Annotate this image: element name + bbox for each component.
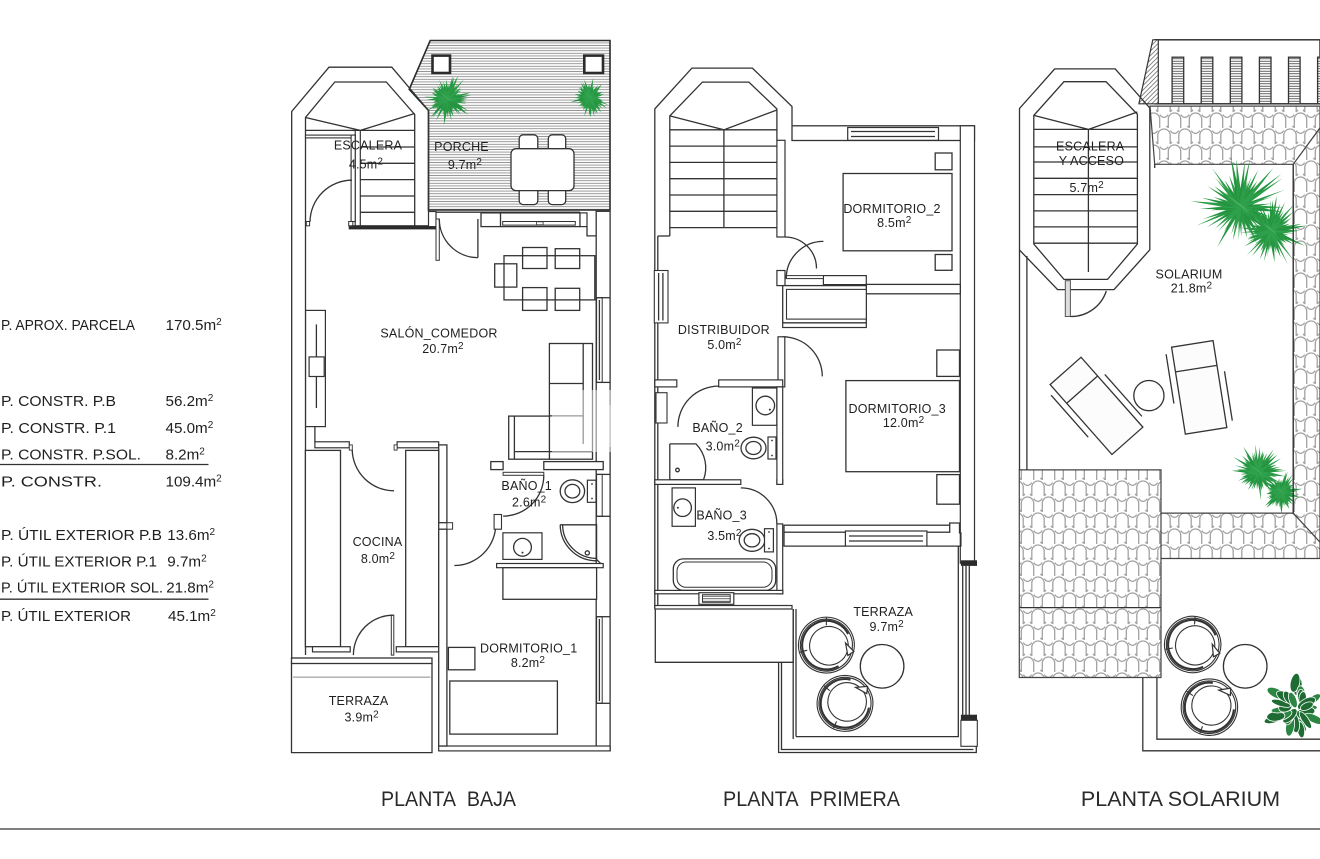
svg-text:20.7m2: 20.7m2 xyxy=(422,341,464,356)
svg-text:PLANTA BAJA: PLANTA BAJA xyxy=(381,787,517,811)
svg-text:45.1m2: 45.1m2 xyxy=(168,608,216,625)
svg-text:SALÓN_COMEDOR: SALÓN_COMEDOR xyxy=(380,326,497,341)
svg-text:12.0m2: 12.0m2 xyxy=(883,415,925,430)
svg-text:BAÑO_3: BAÑO_3 xyxy=(696,509,747,523)
svg-text:109.4m2: 109.4m2 xyxy=(166,474,223,491)
svg-text:P. ÚTIL EXTERIOR P.B: P. ÚTIL EXTERIOR P.B xyxy=(1,527,162,544)
svg-text:P. CONSTR. P.1: P. CONSTR. P.1 xyxy=(1,420,116,437)
svg-text:21.8m2: 21.8m2 xyxy=(1171,281,1213,296)
svg-text:45.0m2: 45.0m2 xyxy=(166,420,214,437)
svg-text:TERRAZA: TERRAZA xyxy=(853,605,913,619)
svg-text:BAÑO_2: BAÑO_2 xyxy=(692,421,743,435)
svg-text:BAÑO_1: BAÑO_1 xyxy=(501,479,552,493)
svg-text:P. CONSTR. P.B: P. CONSTR. P.B xyxy=(1,393,116,410)
svg-text:P. APROX. PARCELA: P. APROX. PARCELA xyxy=(1,317,136,334)
svg-text:P. ÚTIL EXTERIOR P.1: P. ÚTIL EXTERIOR P.1 xyxy=(1,554,157,571)
svg-text:ESCALERA: ESCALERA xyxy=(334,139,403,153)
svg-text:P. CONSTR.: P. CONSTR. xyxy=(1,474,102,491)
svg-text:P. CONSTR. P.SOL.: P. CONSTR. P.SOL. xyxy=(1,447,141,464)
svg-text:TERRAZA: TERRAZA xyxy=(329,694,389,708)
svg-text:56.2m2: 56.2m2 xyxy=(166,393,214,410)
svg-text:COCINA: COCINA xyxy=(353,535,403,549)
svg-text:21.8m2: 21.8m2 xyxy=(166,580,214,597)
svg-text:P. ÚTIL EXTERIOR: P. ÚTIL EXTERIOR xyxy=(1,608,131,625)
svg-text:DORMITORIO_3: DORMITORIO_3 xyxy=(849,402,946,416)
svg-text:SOLARIUM: SOLARIUM xyxy=(1156,268,1223,282)
svg-text:PORCHE: PORCHE xyxy=(434,140,489,154)
svg-text:ESCALERA: ESCALERA xyxy=(1056,140,1125,154)
svg-text:DORMITORIO_2: DORMITORIO_2 xyxy=(843,202,940,216)
svg-text:Y ACCESO: Y ACCESO xyxy=(1059,154,1124,168)
svg-text:170.5m2: 170.5m2 xyxy=(166,317,223,334)
svg-text:P. ÚTIL EXTERIOR SOL.: P. ÚTIL EXTERIOR SOL. xyxy=(1,580,163,597)
svg-text:DORMITORIO_1: DORMITORIO_1 xyxy=(480,642,577,656)
svg-text:DISTRIBUIDOR: DISTRIBUIDOR xyxy=(678,323,770,337)
svg-text:PLANTA SOLARIUM: PLANTA SOLARIUM xyxy=(1081,787,1280,811)
svg-text:13.6m2: 13.6m2 xyxy=(167,527,215,544)
svg-text:PLANTA PRIMERA: PLANTA PRIMERA xyxy=(723,787,901,811)
